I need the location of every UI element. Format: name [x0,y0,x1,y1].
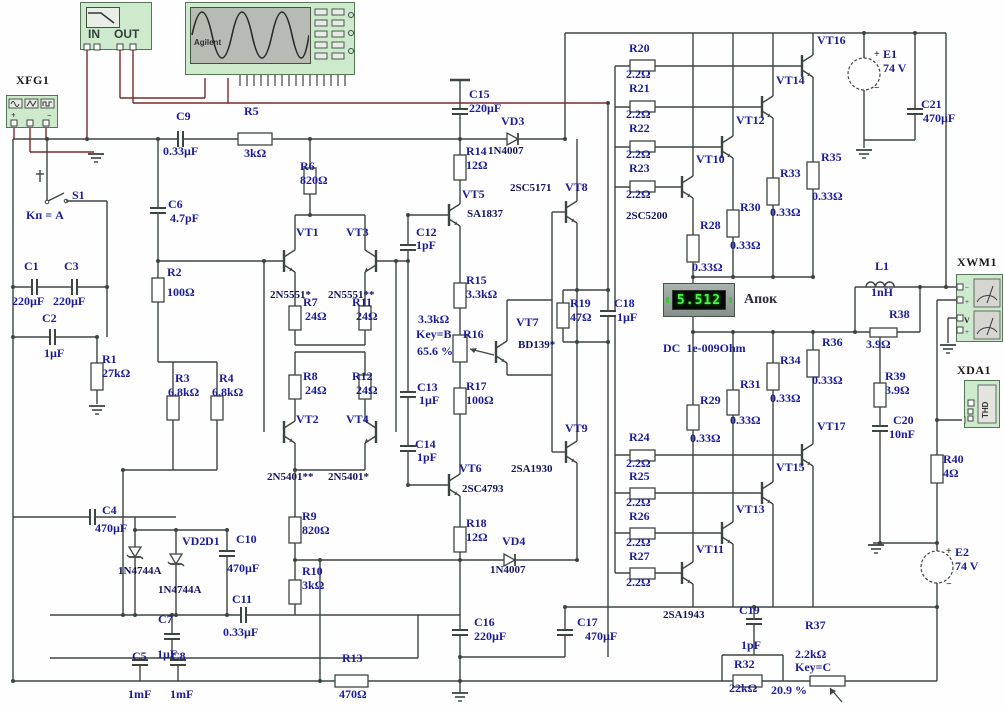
component-label: 0.33Ω [770,392,801,404]
component-label: 2SA1930 [511,464,553,475]
component-label: R31 [740,378,761,390]
component-label: 6.8kΩ [168,386,199,398]
component-label: 3.3kΩ [418,313,449,325]
component-label: C13 [417,381,438,393]
component-label: 12Ω [466,531,488,543]
component-label: R38 [889,308,910,320]
limiter-terminals [80,40,152,52]
component-label: Key=C [795,661,831,673]
component-label: R13 [342,652,363,664]
component-label: 3kΩ [244,147,266,159]
component-label: R28 [700,219,721,231]
component-label: R33 [780,167,801,179]
component-labels-layer: XFG1S1Kп = AC1220µFC3220µFC21µFR127kΩC90… [0,0,1004,710]
component-label: 0.33Ω [770,206,801,218]
component-label: 2.2Ω [626,576,651,588]
component-label: VT7 [516,316,539,328]
component-label: VT14 [776,74,805,86]
component-label: C3 [64,260,79,272]
component-label: 1mF [170,688,193,700]
component-label: R19 [570,297,591,309]
component-label: R6 [300,160,315,172]
component-label: 2SA1943 [663,610,705,621]
component-label: 3.9Ω [866,338,891,350]
component-label: D1 [205,535,220,547]
component-label: 220µF [474,630,506,642]
component-label: SA1837 [467,209,503,220]
component-label: R24 [629,431,650,443]
ammeter-tick [666,297,669,303]
component-label: E1 [883,48,897,60]
component-label: R5 [244,105,259,117]
component-label: 0.33Ω [692,261,723,273]
component-label: C2 [42,312,57,324]
component-label: R32 [734,658,755,670]
component-label: XDA1 [957,364,991,376]
component-label: VT10 [696,153,725,165]
component-label: VT4 [346,413,369,425]
component-label: R25 [629,470,650,482]
component-label: R14 [466,145,487,157]
limiter-out-label: OUT [114,27,139,41]
component-label: VT16 [817,34,846,46]
component-label: 0.33Ω [690,432,721,444]
component-label: R35 [821,151,842,163]
component-label: 220µF [469,102,501,114]
component-label: − [874,84,880,94]
component-label: 24Ω [305,384,327,396]
component-label: R21 [629,82,650,94]
component-label: C5 [132,650,147,662]
component-label: C19 [739,604,760,616]
component-label: XFG1 [16,74,49,86]
component-label: R4 [219,372,234,384]
component-label: C9 [176,110,191,122]
ammeter-tick [729,297,732,303]
component-label: R23 [629,162,650,174]
component-label: VT3 [346,226,369,238]
svg-text:+: + [11,111,16,120]
component-label: C20 [893,414,914,426]
component-label: VT17 [817,420,846,432]
component-label: 1N4744A [118,566,161,577]
component-label: BD139* [518,340,555,351]
component-label: 2.2Ω [626,536,651,548]
component-label: C11 [232,593,252,605]
component-label: 47Ω [570,311,592,323]
component-label: 65.6 % [417,345,453,357]
component-label: 6.8kΩ [212,386,243,398]
component-label: 2.2Ω [626,496,651,508]
component-label: R2 [167,266,182,278]
component-label: 4Ω [943,467,959,479]
component-label: R11 [352,296,372,308]
component-label: C16 [474,616,495,628]
component-label: 820Ω [302,524,330,536]
svg-text:V: V [964,316,970,325]
component-label: 0.33Ω [730,414,761,426]
component-label: Kп = A [26,209,64,221]
component-label: R27 [629,550,650,562]
component-label: 24Ω [305,310,327,322]
component-label: 1µF [44,347,64,359]
component-label: VT5 [462,188,485,200]
component-label: VT12 [736,114,765,126]
ammeter-value: 5.512 [677,293,721,308]
component-label: E2 [955,546,969,558]
component-label: R30 [740,201,761,213]
component-label: R17 [466,380,487,392]
component-label: R39 [885,370,906,382]
component-label: 1nH [871,286,893,298]
component-label: R10 [302,565,323,577]
component-label: Key=B [416,328,452,340]
component-label: 2SC5171 [510,183,552,194]
component-label: 0.33Ω [812,190,843,202]
component-label: DC 1e-009Ohm [663,342,746,354]
component-label: 0.33Ω [730,239,761,251]
component-label: 20.9 % [771,684,807,696]
component-label: 470µF [585,630,617,642]
component-label: L1 [875,260,889,272]
component-label: C4 [102,504,117,516]
component-label: 1N4007 [488,146,523,157]
component-label: 3.3kΩ [466,288,497,300]
component-label: 4.7pF [170,212,199,224]
component-label: 10nF [889,428,915,440]
component-label: 24Ω [356,384,378,396]
component-label: VT9 [565,422,588,434]
scope-brand-label: Agilent [194,38,221,47]
component-label: C10 [236,533,257,545]
component-label: C6 [168,198,183,210]
component-label: R7 [303,296,318,308]
component-label: VT13 [736,503,765,515]
component-label: 1µF [419,394,439,406]
component-label: R12 [352,370,373,382]
component-label: 1mF [128,688,151,700]
component-label: VT2 [296,413,319,425]
component-label: R36 [822,336,843,348]
component-label: C14 [415,438,436,450]
component-label: VT1 [296,226,319,238]
component-label: C12 [416,226,437,238]
component-label: S1 [72,189,85,201]
component-label: R18 [466,517,487,529]
component-label: 1pF [417,451,437,463]
component-label: 820Ω [300,174,328,186]
component-label: C15 [469,88,490,100]
scope-buttons [312,7,356,62]
component-label: VD4 [502,535,525,547]
component-label: Апок [744,293,777,307]
xwm1-face: −+ V+ [956,274,1003,342]
component-label: R1 [102,353,117,365]
component-label: R9 [302,510,317,522]
component-label: 470µF [923,112,955,124]
component-label: 1µF [617,311,637,323]
component-label: C7 [158,613,173,625]
component-label: R3 [175,372,190,384]
component-label: 24Ω [356,310,378,322]
component-label: 2N5401* [328,472,369,483]
component-label: 2.2Ω [626,188,651,200]
ammeter-display[interactable]: 5.512 [663,283,735,317]
component-label: 22kΩ [729,682,757,694]
component-label: VD3 [501,115,524,127]
component-label: C21 [921,98,942,110]
component-label: 0.33µF [163,145,198,157]
svg-text:−: − [965,284,969,292]
scope-waveform [190,7,309,62]
component-label: VD2 [182,535,205,547]
component-label: 12Ω [466,159,488,171]
limiter-curve-icon [86,7,118,26]
component-label: 1N4007 [490,565,525,576]
component-label: VT8 [565,181,588,193]
component-label: 0.33Ω [812,374,843,386]
component-label: R15 [466,274,487,286]
component-label: 3kΩ [302,579,324,591]
component-label: XWM1 [957,256,997,268]
component-label: 470µF [95,522,127,534]
component-label: R37 [805,619,826,631]
component-label: R22 [629,122,650,134]
svg-text:+: + [965,328,969,336]
component-label: 100Ω [167,286,195,298]
component-label: 470Ω [339,688,367,700]
component-label: 3.9Ω [885,384,910,396]
component-label: 100Ω [466,394,494,406]
component-label: C18 [614,297,635,309]
xfg1-face: + − [6,95,58,128]
component-label: 2.2kΩ [795,648,826,660]
component-label: 1pF [416,239,436,251]
component-label: 470µF [227,562,259,574]
component-label: 2.2Ω [626,68,651,80]
svg-text:+: + [965,298,969,306]
component-label: 2N5401** [267,472,313,483]
component-label: R20 [629,42,650,54]
component-label: 2.2Ω [626,148,651,160]
component-label: VT6 [459,462,482,474]
component-label: 1N4744A [158,585,201,596]
component-label: VT15 [776,461,805,473]
svg-text:−: − [47,111,52,120]
xda1-mode-label: THD [981,402,990,418]
component-label: 1pF [741,639,761,651]
component-label: R16 [463,328,484,340]
component-label: VT11 [696,543,724,555]
schematic-canvas: XFG1S1Kп = AC1220µFC3220µFC21µFR127kΩC90… [0,0,1004,710]
component-label: 1µF [157,648,177,660]
component-label: 27kΩ [102,367,130,379]
component-label: C17 [577,616,598,628]
limiter-in-label: IN [88,27,100,41]
component-label: R34 [780,354,801,366]
component-label: R40 [943,453,964,465]
component-label: R29 [700,394,721,406]
component-label: R8 [303,370,318,382]
component-label: 2.2Ω [626,108,651,120]
ammeter-screen: 5.512 [672,290,726,310]
component-label: 2.2Ω [626,457,651,469]
component-label: 220µF [12,295,44,307]
component-label: R26 [629,510,650,522]
component-label: 220µF [53,295,85,307]
component-label: C1 [24,260,39,272]
component-label: 0.33µF [223,626,258,638]
component-label: 74 V [955,560,978,572]
component-label: 74 V [883,62,906,74]
component-label: + [946,547,952,557]
component-label: − [946,580,952,590]
component-label: 2SC4793 [462,484,504,495]
component-label: + [874,50,880,60]
component-label: 2SC5200 [626,211,668,222]
